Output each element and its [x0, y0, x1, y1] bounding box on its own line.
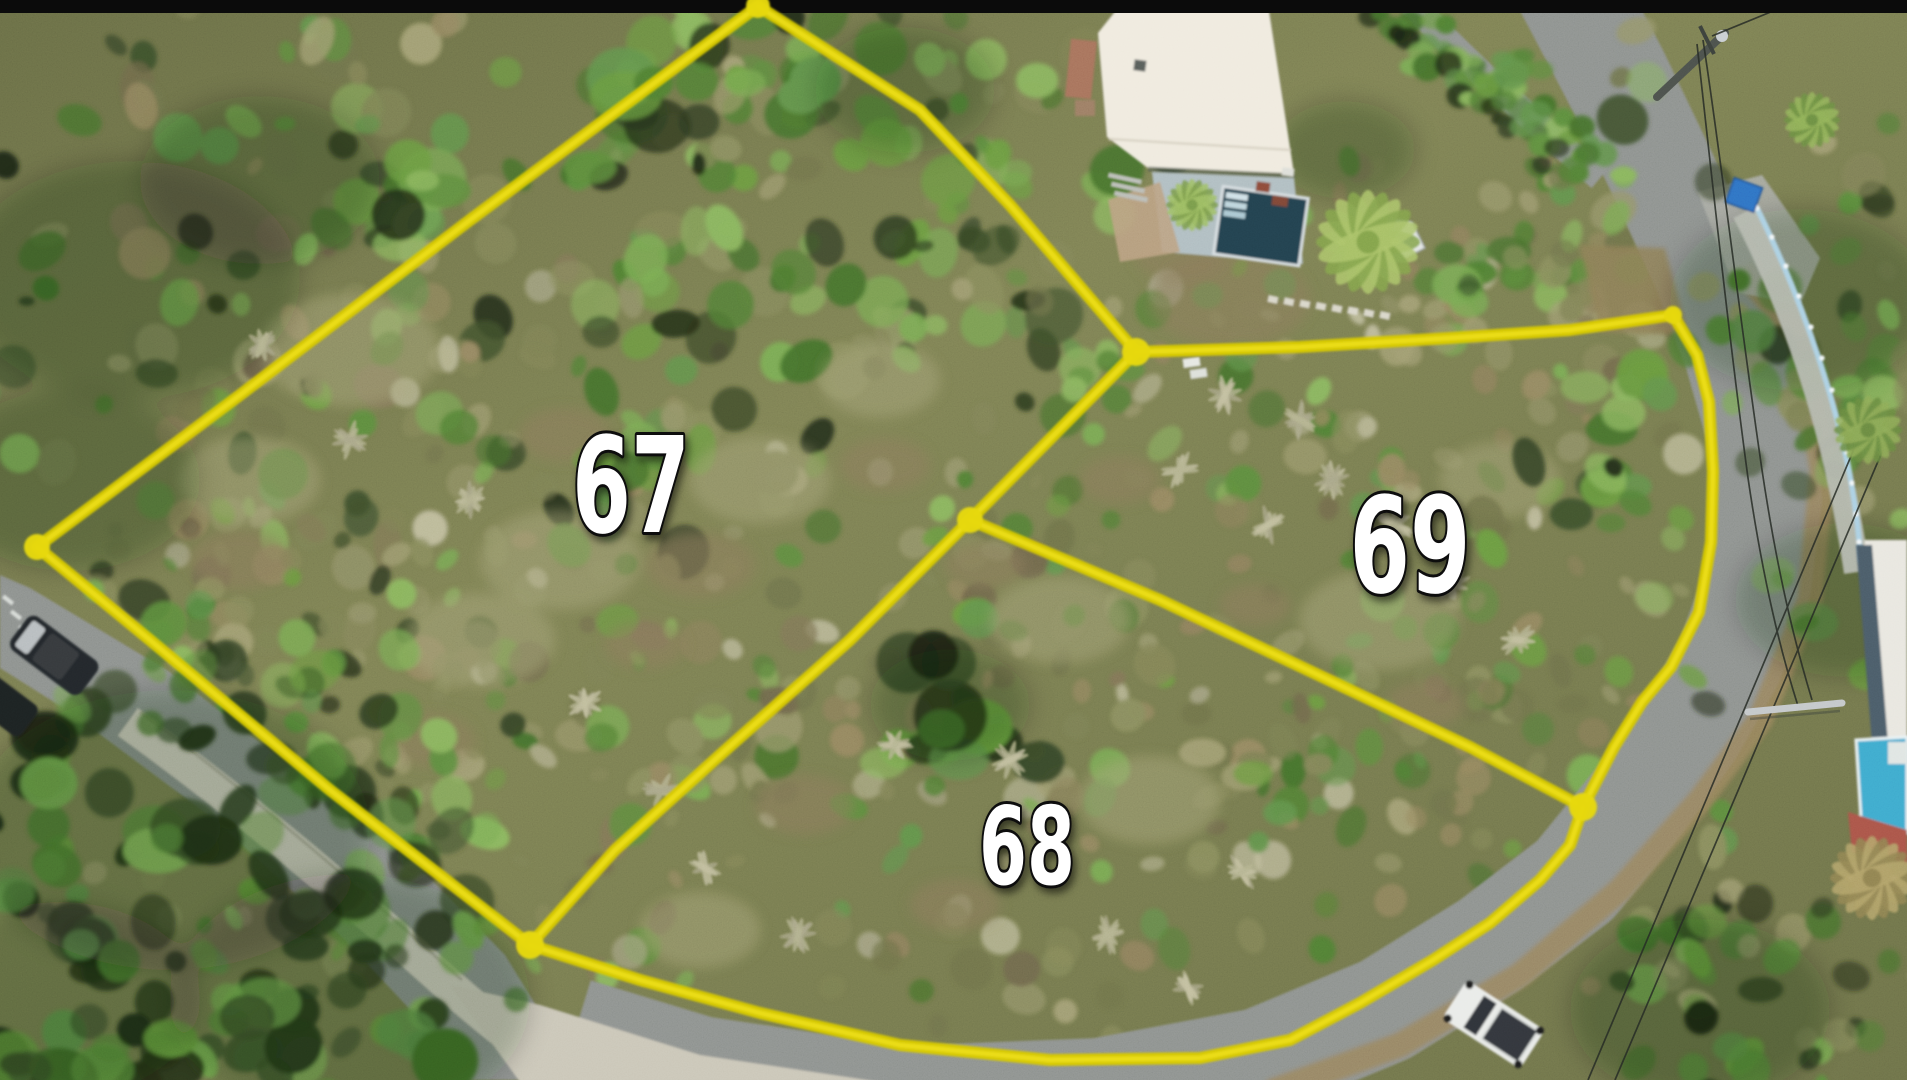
boundary-node-5	[1569, 793, 1597, 821]
parcel-label-67: 67	[572, 410, 690, 564]
boundary-node-6	[1664, 306, 1682, 324]
letterbox-bar	[0, 0, 1907, 13]
boundary-node-3	[957, 507, 983, 533]
parcel-label-69: 69	[1350, 470, 1471, 624]
boundary-node-1	[24, 534, 50, 560]
boundary-node-4	[1122, 338, 1150, 366]
aerial-parcel-photo: 67 68 69	[0, 0, 1907, 1080]
boundary-node-2	[516, 931, 544, 959]
parcel-label-68: 68	[979, 785, 1075, 910]
